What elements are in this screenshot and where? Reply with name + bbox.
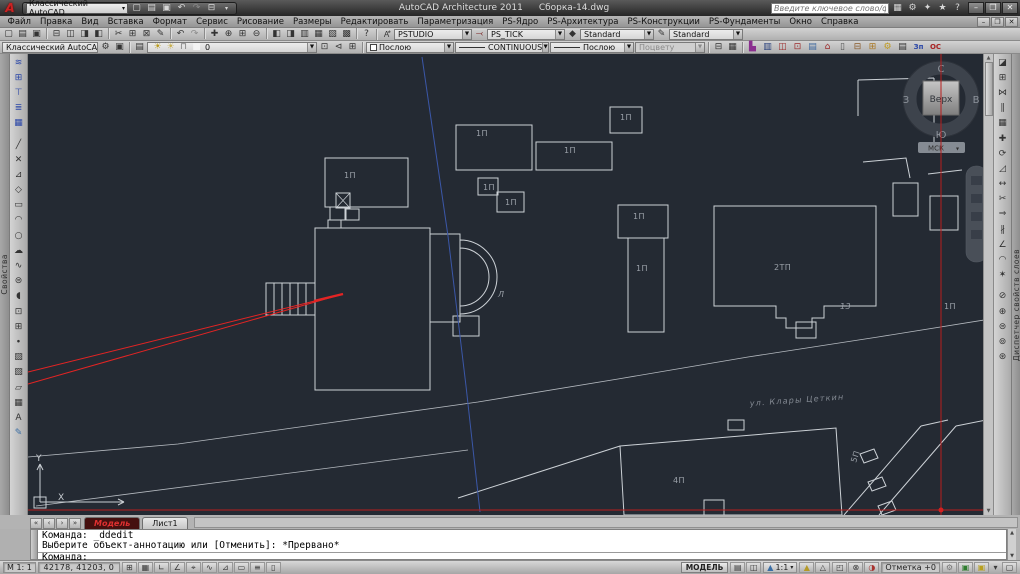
title-bar: A Классический AutoCAD▾ ▢ ▤ ▣ ↶ ↷ ⊟ ▾ Au…: [0, 0, 1020, 16]
make-layer-current-icon[interactable]: ⊡: [318, 41, 331, 53]
search-input[interactable]: [771, 3, 889, 14]
layers-properties-toolbar: Классический AutoCAD▼ ⚙▣ ▤ ☀☀⊓■ 0 ▼ ⊡⊲⊞ …: [0, 41, 1020, 54]
redo-icon[interactable]: ↷: [188, 28, 201, 40]
menu-правка[interactable]: Правка: [35, 17, 76, 27]
polar-toggle[interactable]: ∠: [170, 562, 185, 573]
vertical-scrollbar[interactable]: ▲ ▼: [983, 54, 993, 515]
properties-palette-label: Свойства: [0, 254, 9, 295]
close-button[interactable]: ✕: [1002, 2, 1018, 14]
drawing-label: 1П: [564, 146, 576, 155]
drawing-label: 13: [840, 302, 851, 311]
ps-mark-icon[interactable]: ≣: [11, 101, 27, 116]
style-combo-pstick[interactable]: PS_TICK▼: [487, 29, 565, 40]
doc-restore-button[interactable]: ❐: [991, 17, 1004, 27]
rotate-icon[interactable]: ⟳: [995, 146, 1011, 161]
ps-stair-icon[interactable]: ▤: [806, 41, 819, 53]
dyn-toggle[interactable]: ▭: [234, 562, 249, 573]
circle-icon[interactable]: ○: [11, 228, 27, 243]
ps-grid-icon[interactable]: ⊞: [866, 41, 879, 53]
plot-icon[interactable]: ⊟: [50, 28, 63, 40]
cut-icon[interactable]: ✂: [112, 28, 125, 40]
ps-zp-button[interactable]: Зп: [911, 41, 926, 53]
gradient-icon[interactable]: ▧: [11, 365, 27, 380]
layer-properties-icon[interactable]: ▤: [133, 41, 146, 53]
lineweight-combo[interactable]: Послою▼: [550, 42, 634, 53]
menu-ps-фундаменты[interactable]: PS-Фундаменты: [704, 17, 784, 27]
street-label: ул. Клары Цеткин: [749, 392, 845, 408]
drawing-label: X: [58, 493, 65, 503]
layer-manager-palette-tab[interactable]: Диспетчер свойств слоев: [1011, 54, 1020, 515]
menu-справка[interactable]: Справка: [816, 17, 862, 27]
ps-scale-indicator[interactable]: М 1: 1: [3, 562, 36, 573]
help-menu-icon[interactable]: ?: [951, 2, 964, 15]
drawing-label: Y: [35, 454, 42, 464]
polyline-icon[interactable]: ⊿: [11, 167, 27, 182]
ps-axis-icon[interactable]: ≋: [11, 55, 27, 70]
addselected-icon[interactable]: ✎: [11, 426, 27, 441]
command-window: Команда: _ddedit Выберите объект-аннотац…: [0, 529, 1020, 560]
zoom-previous-icon[interactable]: ⊖: [250, 28, 263, 40]
doc-minimize-button[interactable]: –: [977, 17, 990, 27]
elevation-indicator[interactable]: Отметка +0: [881, 562, 940, 573]
drawing-label: 1П: [633, 212, 645, 221]
drawing-canvas[interactable]: 1П1П1П1П1П1П1П1П2ТП131ПЛ4П5ПYX ул. Клары…: [28, 54, 983, 515]
ps-wall-icon[interactable]: ▙: [746, 41, 759, 53]
help-icon[interactable]: ?: [360, 28, 373, 40]
subscription-wrench-icon[interactable]: ⚙: [906, 2, 919, 15]
scale-icon[interactable]: ◿: [995, 161, 1011, 176]
menu-сервис[interactable]: Сервис: [192, 17, 233, 27]
annotation-autoscale-icon[interactable]: △: [815, 562, 830, 573]
menu-ps-архитектура[interactable]: PS-Архитектура: [543, 17, 623, 27]
insert-block-icon[interactable]: ⊡: [11, 304, 27, 319]
quickcalc-icon[interactable]: ▩: [340, 28, 353, 40]
building-outlines: [28, 78, 983, 515]
grid-toggle[interactable]: ▦: [138, 562, 153, 573]
qat-dropdown-icon[interactable]: ▾: [220, 2, 233, 15]
document-window-buttons: – ❐ ✕: [976, 17, 1018, 27]
osnap-toggle[interactable]: ⌖: [186, 562, 201, 573]
polygon-icon[interactable]: ◇: [11, 183, 27, 198]
copy-icon[interactable]: ⊞: [995, 70, 1011, 85]
drawing-geometry: 1П1П1П1П1П1П1П1П2ТП131ПЛ4П5ПYX ул. Клары…: [28, 54, 983, 515]
layer-combo[interactable]: ☀☀⊓■ 0 ▼: [147, 42, 317, 53]
extend-icon[interactable]: ⇒: [995, 207, 1011, 222]
revision-cloud-icon[interactable]: ☁: [11, 243, 27, 258]
copy-clip-icon[interactable]: ⊞: [126, 28, 139, 40]
zoom-window-icon[interactable]: ⊞: [236, 28, 249, 40]
ellipse-icon[interactable]: ⊜: [11, 274, 27, 289]
first-tab-button[interactable]: «: [30, 518, 42, 529]
scroll-down-icon[interactable]: ▼: [987, 508, 991, 514]
draw-toolbar: ≋⊞⊤≣▦╱✕⊿◇▭◠○☁∿⊜◖⊡⊞∙▨▧▱▦A✎: [10, 54, 28, 515]
coordinates-readout[interactable]: 42178, 41203, 0: [38, 562, 120, 573]
properties-icon[interactable]: ◧: [270, 28, 283, 40]
undo-icon[interactable]: ↶: [174, 28, 187, 40]
sheetset-icon[interactable]: ▦: [312, 28, 325, 40]
ps-settings-icon[interactable]: ⚙: [881, 41, 894, 53]
style-combo-pstudio[interactable]: PSTUDIO▼: [394, 29, 472, 40]
window-title: AutoCAD Architecture 2011 Сборка-14.dwg: [237, 3, 771, 13]
navigation-lock-icon[interactable]: ⊗: [848, 562, 863, 573]
mleader-style-icon: ✎: [655, 28, 668, 40]
match-properties-icon[interactable]: ✎: [154, 28, 167, 40]
restore-button[interactable]: ❐: [985, 2, 1001, 14]
new-file-icon[interactable]: ▢: [2, 28, 15, 40]
dim-style-icon: ⤙: [473, 28, 486, 40]
trim-icon[interactable]: ✂: [995, 192, 1011, 207]
tab-layout1[interactable]: Лист1: [142, 517, 187, 529]
drawing-label: 1П: [505, 198, 517, 207]
horizontal-scrollbar[interactable]: [194, 517, 1018, 528]
hatch-icon[interactable]: ▨: [11, 350, 27, 365]
layer-manager-palette-label: Диспетчер свойств слоев: [1012, 249, 1020, 361]
pan-icon[interactable]: ✚: [208, 28, 221, 40]
qat-redo-icon[interactable]: ↷: [190, 2, 203, 15]
drawing-label: 4П: [673, 476, 685, 485]
qat-plot-icon[interactable]: ⊟: [205, 2, 218, 15]
tray-plot-icon[interactable]: ▣: [958, 562, 973, 573]
markup-icon[interactable]: ▧: [326, 28, 339, 40]
layer-match-icon[interactable]: ⊛: [995, 350, 1011, 365]
autocad-window: A Классический AutoCAD▾ ▢ ▤ ▣ ↶ ↷ ⊟ ▾ Au…: [0, 0, 1020, 574]
infocenter: ▦ ⚙ ✦ ★ ?: [771, 2, 964, 15]
navigation-bar[interactable]: [966, 166, 983, 262]
fillet-icon[interactable]: ◠: [995, 252, 1011, 267]
vertical-scroll-thumb[interactable]: [985, 62, 993, 116]
command-line-2: Выберите объект-аннотацию или [Отменить]…: [42, 540, 339, 551]
tray-bulb-icon[interactable]: ▣: [974, 562, 989, 573]
tool-palettes-icon[interactable]: ▥: [298, 28, 311, 40]
qat-save-icon[interactable]: ▣: [160, 2, 173, 15]
ortho-toggle[interactable]: ∟: [154, 562, 169, 573]
isolate-objects-icon[interactable]: ◑: [864, 562, 879, 573]
drawing-label: 2ТП: [774, 263, 791, 272]
layer-off-icon[interactable]: ⊘: [995, 289, 1011, 304]
scroll-up-icon[interactable]: ▲: [987, 55, 991, 61]
text-style-combo[interactable]: Standard▼: [580, 29, 654, 40]
annotation-scale-combo[interactable]: ▲1:1▾: [763, 562, 797, 573]
qat-new-icon[interactable]: ▢: [130, 2, 143, 15]
lwt-toggle[interactable]: ≡: [250, 562, 265, 573]
autocad-logo-icon[interactable]: A: [0, 0, 20, 16]
publish-icon[interactable]: ◨: [78, 28, 91, 40]
standard-toolbar: ▢▤▣⊟◫◨◧✂⊞⊠✎↶↷✚⊕⊞⊖◧◨▥▦▧▩? A⃰ PSTUDIO▼ ⤙ P…: [0, 28, 1020, 41]
dim-style-combo[interactable]: Standard▼: [669, 29, 743, 40]
quickview-drawings-icon[interactable]: ◰: [832, 562, 847, 573]
color-combo[interactable]: Послою▼: [366, 42, 454, 53]
save-icon[interactable]: ▣: [30, 28, 43, 40]
paste-icon[interactable]: ⊠: [140, 28, 153, 40]
layer-isolate-icon[interactable]: ⊕: [995, 304, 1011, 319]
properties-palette-tab[interactable]: Свойства: [0, 54, 10, 515]
designcenter-icon[interactable]: ◨: [284, 28, 297, 40]
minimize-button[interactable]: –: [968, 2, 984, 14]
open-file-icon[interactable]: ▤: [16, 28, 29, 40]
prev-tab-button[interactable]: ‹: [43, 518, 55, 529]
offset-icon[interactable]: ∥: [995, 101, 1011, 116]
ps-column-icon[interactable]: ▯: [836, 41, 849, 53]
workspace-settings-icon[interactable]: ⚙: [99, 41, 112, 53]
model-space-icon[interactable]: ▤: [730, 562, 745, 573]
current-layer-value: 0: [205, 43, 210, 52]
red-construction-lines: [28, 54, 983, 515]
drawing-label: 5П: [849, 450, 861, 464]
layer-freeze2-icon[interactable]: ⊜: [995, 319, 1011, 334]
viewcube-wcs-label: МСК: [928, 145, 944, 153]
layer-lock2-icon[interactable]: ⊚: [995, 334, 1011, 349]
menu-вид[interactable]: Вид: [77, 17, 103, 27]
drawing-label: 1П: [476, 129, 488, 138]
drawing-label: 1П: [620, 113, 632, 122]
model-space-button[interactable]: МОДЕЛЬ: [681, 562, 729, 573]
quick-access-toolbar: Классический AutoCAD▾ ▢ ▤ ▣ ↶ ↷ ⊟ ▾: [22, 2, 237, 15]
point-icon[interactable]: ∙: [11, 334, 27, 349]
workspace-combo[interactable]: Классический AutoCAD▾: [26, 3, 128, 14]
table-style-icon: ◆: [566, 28, 579, 40]
menu-bar: ФайлПравкаВидВставкаФорматСервисРисовани…: [0, 16, 1020, 28]
menu-окно[interactable]: Окно: [785, 17, 817, 27]
tray-arrow-icon[interactable]: ▾: [991, 562, 1000, 573]
annotation-visibility-icon[interactable]: ▲: [799, 562, 814, 573]
table-icon[interactable]: ▦: [11, 395, 27, 410]
workspace-save-icon[interactable]: ▣: [113, 41, 126, 53]
layer-previous-icon[interactable]: ⊲: [332, 41, 345, 53]
array-icon[interactable]: ▦: [995, 116, 1011, 131]
tab-model[interactable]: Модель: [84, 517, 140, 529]
ps-table-icon[interactable]: ▦: [11, 116, 27, 131]
zoom-realtime-icon[interactable]: ⊕: [222, 28, 235, 40]
communication-icon[interactable]: ✦: [921, 2, 934, 15]
last-tab-button[interactable]: »: [69, 518, 81, 529]
linetype-combo[interactable]: CONTINUOUS▼: [455, 42, 549, 53]
layer-freeze-icon[interactable]: ☀: [164, 42, 177, 53]
layer-bulb-icon[interactable]: ☀: [151, 42, 164, 53]
menu-ps-конструкции[interactable]: PS-Конструкции: [623, 17, 704, 27]
mtext-icon[interactable]: A: [11, 410, 27, 425]
drawing-label: Л: [497, 290, 504, 299]
qp-toggle[interactable]: ▯: [266, 562, 281, 573]
ps-level-icon[interactable]: ⊞: [11, 70, 27, 85]
erase-icon[interactable]: ◪: [995, 55, 1011, 70]
clean-screen-button[interactable]: ▢: [1002, 562, 1017, 573]
document-title: Сборка-14.dwg: [539, 3, 609, 13]
region-icon[interactable]: ▱: [11, 380, 27, 395]
ps-os-button[interactable]: ОС: [928, 41, 943, 53]
ps-door-icon[interactable]: ◫: [776, 41, 789, 53]
plot-style-icon[interactable]: ⊟: [712, 41, 725, 53]
doc-close-button[interactable]: ✕: [1005, 17, 1018, 27]
command-window-grip[interactable]: [30, 529, 37, 560]
ellipse-arc-icon[interactable]: ◖: [11, 289, 27, 304]
drawing-label: 1П: [483, 183, 495, 192]
workspace-switch-icon[interactable]: ⚙: [942, 562, 957, 573]
next-tab-button[interactable]: ›: [56, 518, 68, 529]
table-style-icon[interactable]: ▦: [726, 41, 739, 53]
snap-toggle[interactable]: ⊞: [122, 562, 137, 573]
explode-icon[interactable]: ✶: [995, 268, 1011, 283]
status-bar: М 1: 1 42178, 41203, 0 ⊞▦∟∠⌖∿⊿▭≡▯ МОДЕЛЬ…: [0, 560, 1020, 574]
menu-редактировать[interactable]: Редактировать: [336, 17, 413, 27]
menu-вставка[interactable]: Вставка: [103, 17, 148, 27]
ps-window-icon[interactable]: ⊡: [791, 41, 804, 53]
layer-states-icon[interactable]: ⊞: [346, 41, 359, 53]
annotation-scale-value: 1:1: [775, 563, 788, 572]
make-block-icon[interactable]: ⊞: [11, 319, 27, 334]
viewcube-east[interactable]: В: [973, 95, 980, 106]
line-icon[interactable]: ╱: [11, 137, 27, 152]
break-icon[interactable]: ∦: [995, 222, 1011, 237]
rectangle-icon[interactable]: ▭: [11, 198, 27, 213]
ducs-toggle[interactable]: ⊿: [218, 562, 233, 573]
otrack-toggle[interactable]: ∿: [202, 562, 217, 573]
menu-параметризация[interactable]: Параметризация: [413, 17, 498, 27]
workspaces-combo[interactable]: Классический AutoCAD▼: [2, 42, 98, 53]
construction-line-icon[interactable]: ✕: [11, 152, 27, 167]
plotstyle-combo: Поцвету▼: [635, 42, 705, 53]
ps-dark-icon[interactable]: ▤: [896, 41, 909, 53]
app-title: AutoCAD Architecture 2011: [399, 3, 523, 13]
command-history: Команда: _ddedit Выберите объект-аннотац…: [38, 530, 1006, 552]
layout-tab-row: « ‹ › » Модель Лист1: [0, 515, 1020, 529]
ps-beam-icon[interactable]: ⊟: [851, 41, 864, 53]
layer-lock-icon[interactable]: ⊓: [177, 42, 190, 53]
ps-section-icon[interactable]: ⊤: [11, 85, 27, 100]
ps-roof-icon[interactable]: ⌂: [821, 41, 834, 53]
modify-toolbar: ◪⊞⋈∥▦✚⟳◿↔✂⇒∦∠◠✶⊘⊕⊜⊚⊛: [993, 54, 1011, 515]
drawing-label: 1П: [344, 171, 356, 180]
command-scrollbar[interactable]: ▲▼: [1007, 529, 1016, 560]
menu-рисование[interactable]: Рисование: [232, 17, 288, 27]
layout-icon[interactable]: ◫: [746, 562, 761, 573]
layer-color-icon[interactable]: ■: [190, 42, 203, 53]
svg-text:▾: ▾: [956, 146, 959, 153]
text-style-icon: A⃰: [380, 28, 393, 40]
drawing-label: 1П: [944, 302, 956, 311]
menu-ps-ядро[interactable]: PS-Ядро: [498, 17, 543, 27]
ps-block-icon[interactable]: ▥: [761, 41, 774, 53]
move-icon[interactable]: ✚: [995, 131, 1011, 146]
qat-open-icon[interactable]: ▤: [145, 2, 158, 15]
menu-файл[interactable]: Файл: [3, 17, 35, 27]
drawing-label: 1П: [636, 264, 648, 273]
favorites-star-icon[interactable]: ★: [936, 2, 949, 15]
menu-размеры[interactable]: Размеры: [288, 17, 336, 27]
arc-icon[interactable]: ◠: [11, 213, 27, 228]
3ddwf-icon[interactable]: ◧: [92, 28, 105, 40]
viewcube-west[interactable]: З: [903, 95, 909, 106]
spline-icon[interactable]: ∿: [11, 258, 27, 273]
qat-undo-icon[interactable]: ↶: [175, 2, 188, 15]
mirror-icon[interactable]: ⋈: [995, 85, 1011, 100]
stretch-icon[interactable]: ↔: [995, 177, 1011, 192]
chamfer-icon[interactable]: ∠: [995, 237, 1011, 252]
plot-preview-icon[interactable]: ◫: [64, 28, 77, 40]
workspace-combo-value: Классический AutoCAD: [29, 0, 122, 17]
menu-формат[interactable]: Формат: [148, 17, 192, 27]
search-exchange-icon[interactable]: ▦: [891, 2, 904, 15]
